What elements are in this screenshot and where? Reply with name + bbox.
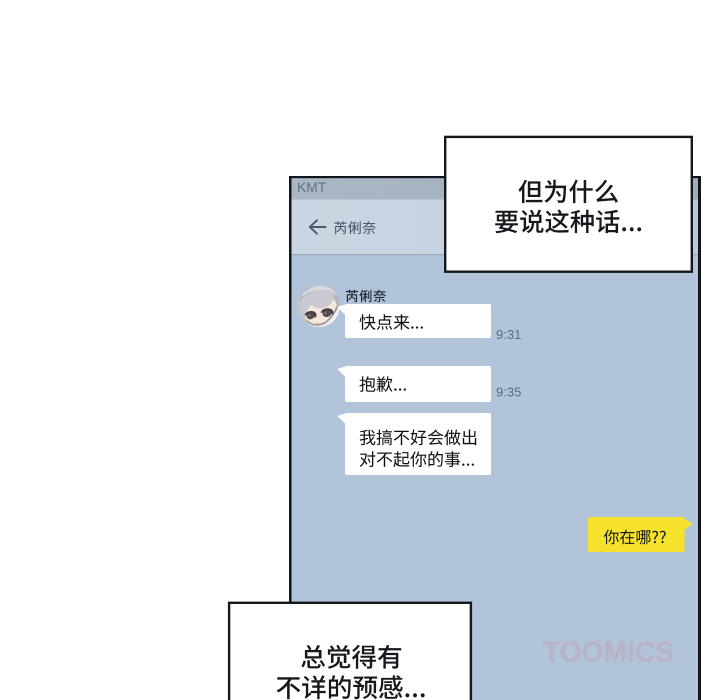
svg-text:9:31: 9:31 [496,327,521,342]
svg-text:KMT: KMT [297,180,327,195]
svg-text:TOOMICS: TOOMICS [543,637,674,669]
svg-text:9:35: 9:35 [496,385,521,400]
